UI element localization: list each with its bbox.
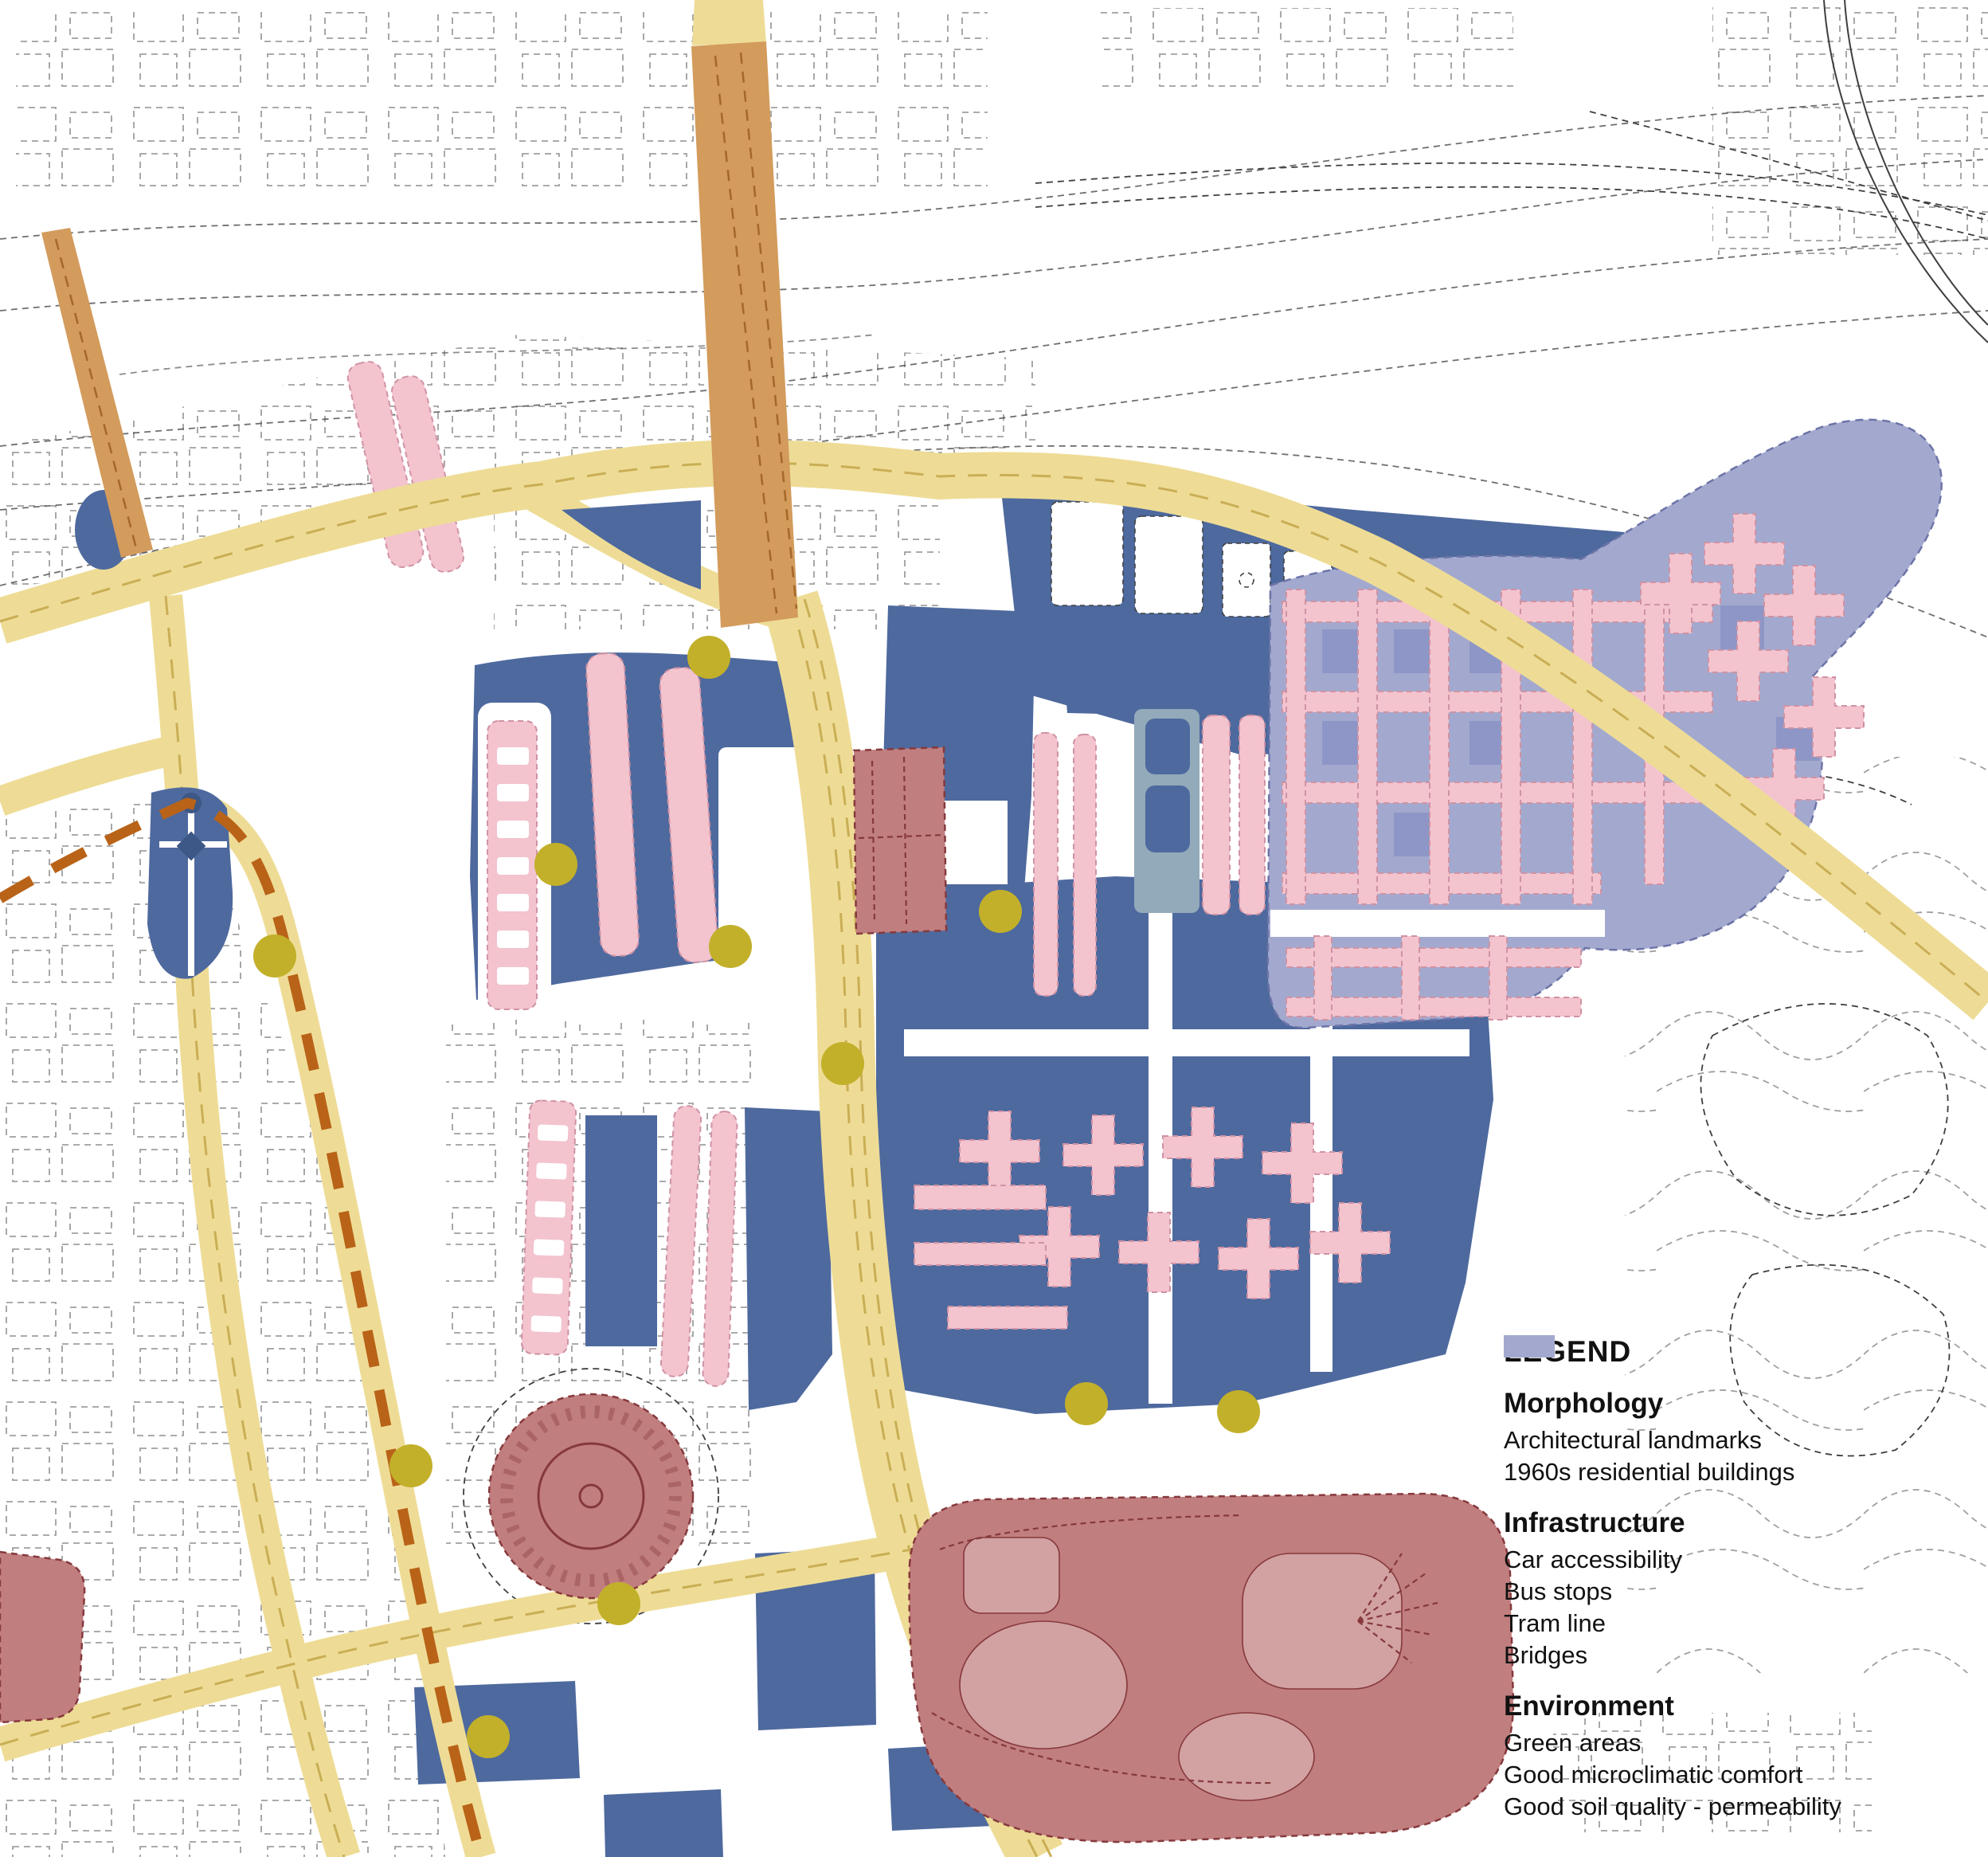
legend-item-bus-stops: Bus stops [1504,1576,1986,1608]
legend: LEGEND Morphology Architectural landmark… [1504,1335,1986,1823]
legend-title: LEGEND [1504,1335,1986,1369]
bus-stop-dot [467,1715,510,1758]
landmark-west-edge [0,1552,84,1722]
legend-item-green-areas: Green areas [1504,1727,1986,1759]
bus-stop-dot [709,925,752,968]
bus-stop-dot [253,934,296,977]
microclimate-strip [1134,709,1199,913]
legend-item-label: Bus stops [1504,1577,1612,1606]
legend-section-environment: Environment Green areas Good microclimat… [1504,1690,1986,1823]
bus-stop-dot [1217,1390,1260,1433]
legend-item-label: Green areas [1504,1729,1641,1757]
legend-item-1960s-residential: 1960s residential buildings [1504,1456,1986,1488]
legend-heading: Morphology [1504,1388,1986,1420]
legend-item-label: Good microclimatic comfort [1504,1761,1803,1789]
landmark-block [854,747,946,934]
ladder-block-south [521,1100,576,1355]
legend-item-soil-quality: Good soil quality - permeability [1504,1791,1986,1823]
landmark-arena [489,1394,693,1598]
bus-stop-dot [597,1582,640,1625]
bus-stop-dot [821,1042,864,1085]
urban-analysis-map: LEGEND Morphology Architectural landmark… [0,0,1988,1857]
legend-section-morphology: Morphology Architectural landmarks 1960s… [1504,1388,1986,1488]
bus-stop-dot [389,1444,432,1487]
legend-heading: Environment [1504,1690,1986,1722]
bus-stop-dot [687,636,730,679]
legend-item-label: Good soil quality - permeability [1504,1792,1841,1821]
bus-stop-dot [534,843,577,886]
legend-item-car-accessibility: Car accessibility [1504,1544,1986,1576]
landmark-palace-complex [910,1494,1513,1842]
legend-section-infrastructure: Infrastructure Car accessibility Bus sto… [1504,1507,1986,1671]
legend-item-bridges: Bridges [1504,1640,1986,1671]
soil-swatch [1504,1335,1555,1357]
bus-stop-dot [979,890,1022,933]
legend-item-architectural-landmarks: Architectural landmarks [1504,1424,1986,1456]
legend-item-label: Car accessibility [1504,1546,1682,1574]
legend-heading: Infrastructure [1504,1507,1986,1539]
ladder-block-north [487,721,537,1009]
legend-item-label: Bridges [1504,1641,1587,1670]
legend-item-tram-line: Tram line [1504,1608,1986,1640]
legend-item-label: Tram line [1504,1609,1606,1638]
legend-item-label: Architectural landmarks [1504,1426,1762,1455]
legend-item-label: 1960s residential buildings [1504,1458,1794,1487]
bus-stop-dot [1065,1382,1108,1425]
legend-item-microclimatic-comfort: Good microclimatic comfort [1504,1759,1986,1791]
